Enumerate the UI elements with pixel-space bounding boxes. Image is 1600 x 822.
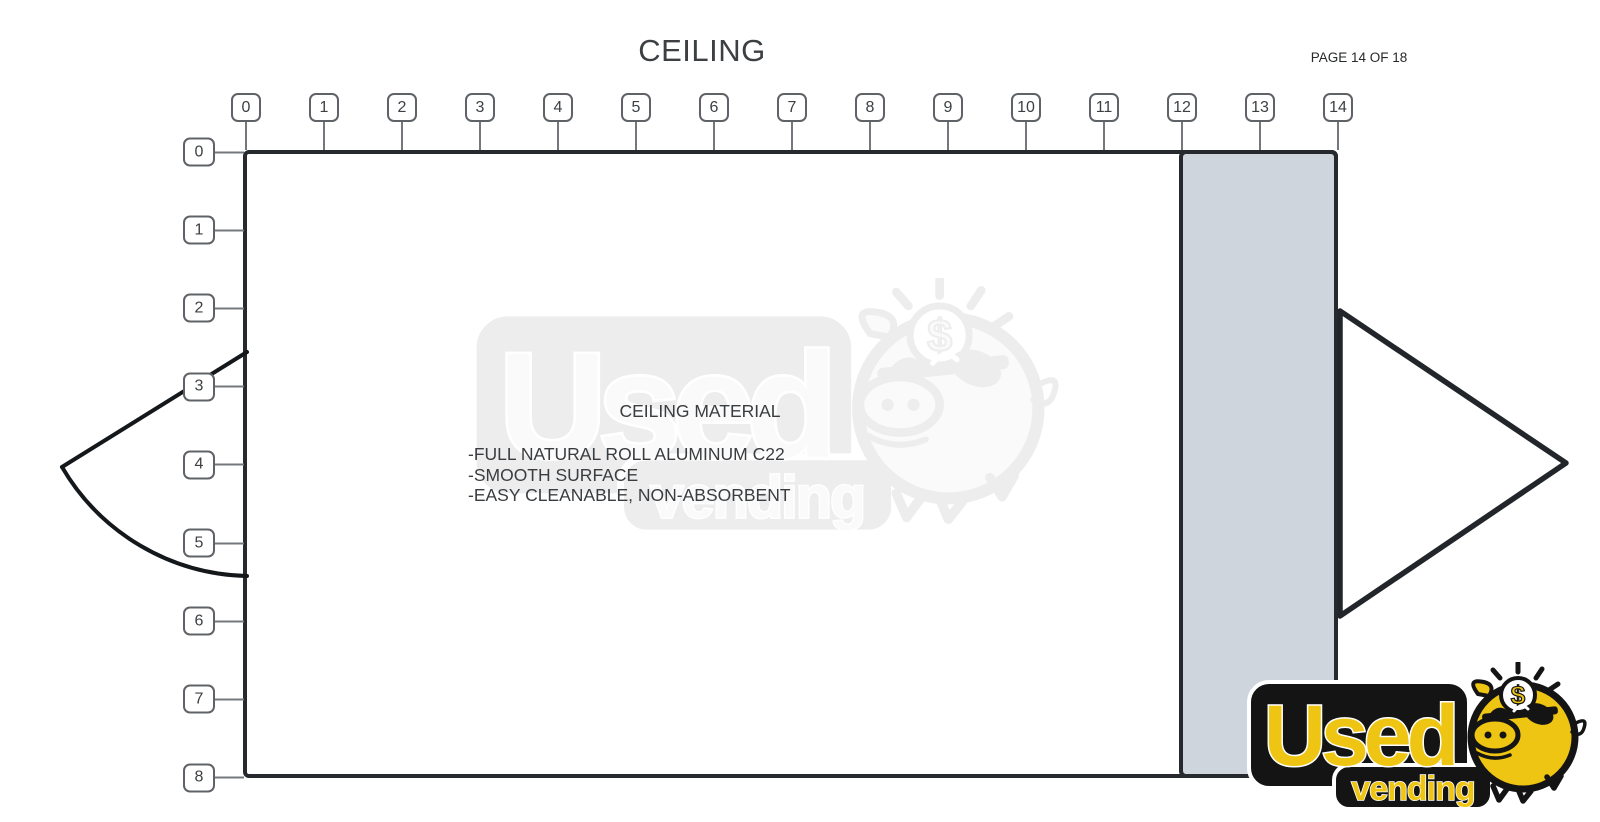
top-ruler-label: 6 <box>699 93 729 122</box>
left-ruler-label: 7 <box>183 685 215 714</box>
left-ruler-label: 8 <box>183 763 215 792</box>
top-ruler-label: 7 <box>777 93 807 122</box>
top-ruler-label: 3 <box>465 93 495 122</box>
top-ruler-label: 1 <box>309 93 339 122</box>
svg-text:vending: vending <box>1351 770 1474 808</box>
left-ruler-label: 5 <box>183 529 215 558</box>
top-ruler-label: 14 <box>1323 93 1353 122</box>
footer-logo: Used vending $ <box>1246 662 1600 814</box>
door-swing-arc <box>62 467 247 576</box>
top-ruler-label: 8 <box>855 93 885 122</box>
page-title: CEILING <box>638 33 766 69</box>
left-ruler-label: 2 <box>183 294 215 323</box>
left-ruler-label: 0 <box>183 138 215 167</box>
top-ruler-label: 4 <box>543 93 573 122</box>
note-line: -SMOOTH SURFACE <box>468 465 791 486</box>
page-indicator: PAGE 14 OF 18 <box>1311 50 1408 65</box>
note-line: -EASY CLEANABLE, NON-ABSORBENT <box>468 485 791 506</box>
notes-list: -FULL NATURAL ROLL ALUMINUM C22-SMOOTH S… <box>468 444 791 506</box>
hitch-triangle <box>1340 311 1566 616</box>
top-ruler-label: 10 <box>1011 93 1041 122</box>
top-ruler-label: 12 <box>1167 93 1197 122</box>
logo-wordmark: Used vending <box>1249 682 1492 809</box>
top-ruler-label: 0 <box>231 93 261 122</box>
note-line: -FULL NATURAL ROLL ALUMINUM C22 <box>468 444 791 465</box>
left-ruler-label: 4 <box>183 450 215 479</box>
notes-heading: CEILING MATERIAL <box>619 401 780 422</box>
piggy-snout <box>1472 719 1518 751</box>
piggy-ear <box>1473 681 1491 696</box>
top-ruler-label: 2 <box>387 93 417 122</box>
top-ruler-label: 11 <box>1089 93 1119 122</box>
left-ruler-label: 6 <box>183 607 215 636</box>
door-swing-line <box>62 352 247 467</box>
left-ruler-label: 1 <box>183 216 215 245</box>
top-ruler-label: 5 <box>621 93 651 122</box>
top-ruler-label: 13 <box>1245 93 1275 122</box>
top-ruler-label: 9 <box>933 93 963 122</box>
left-ruler-label: 3 <box>183 372 215 401</box>
